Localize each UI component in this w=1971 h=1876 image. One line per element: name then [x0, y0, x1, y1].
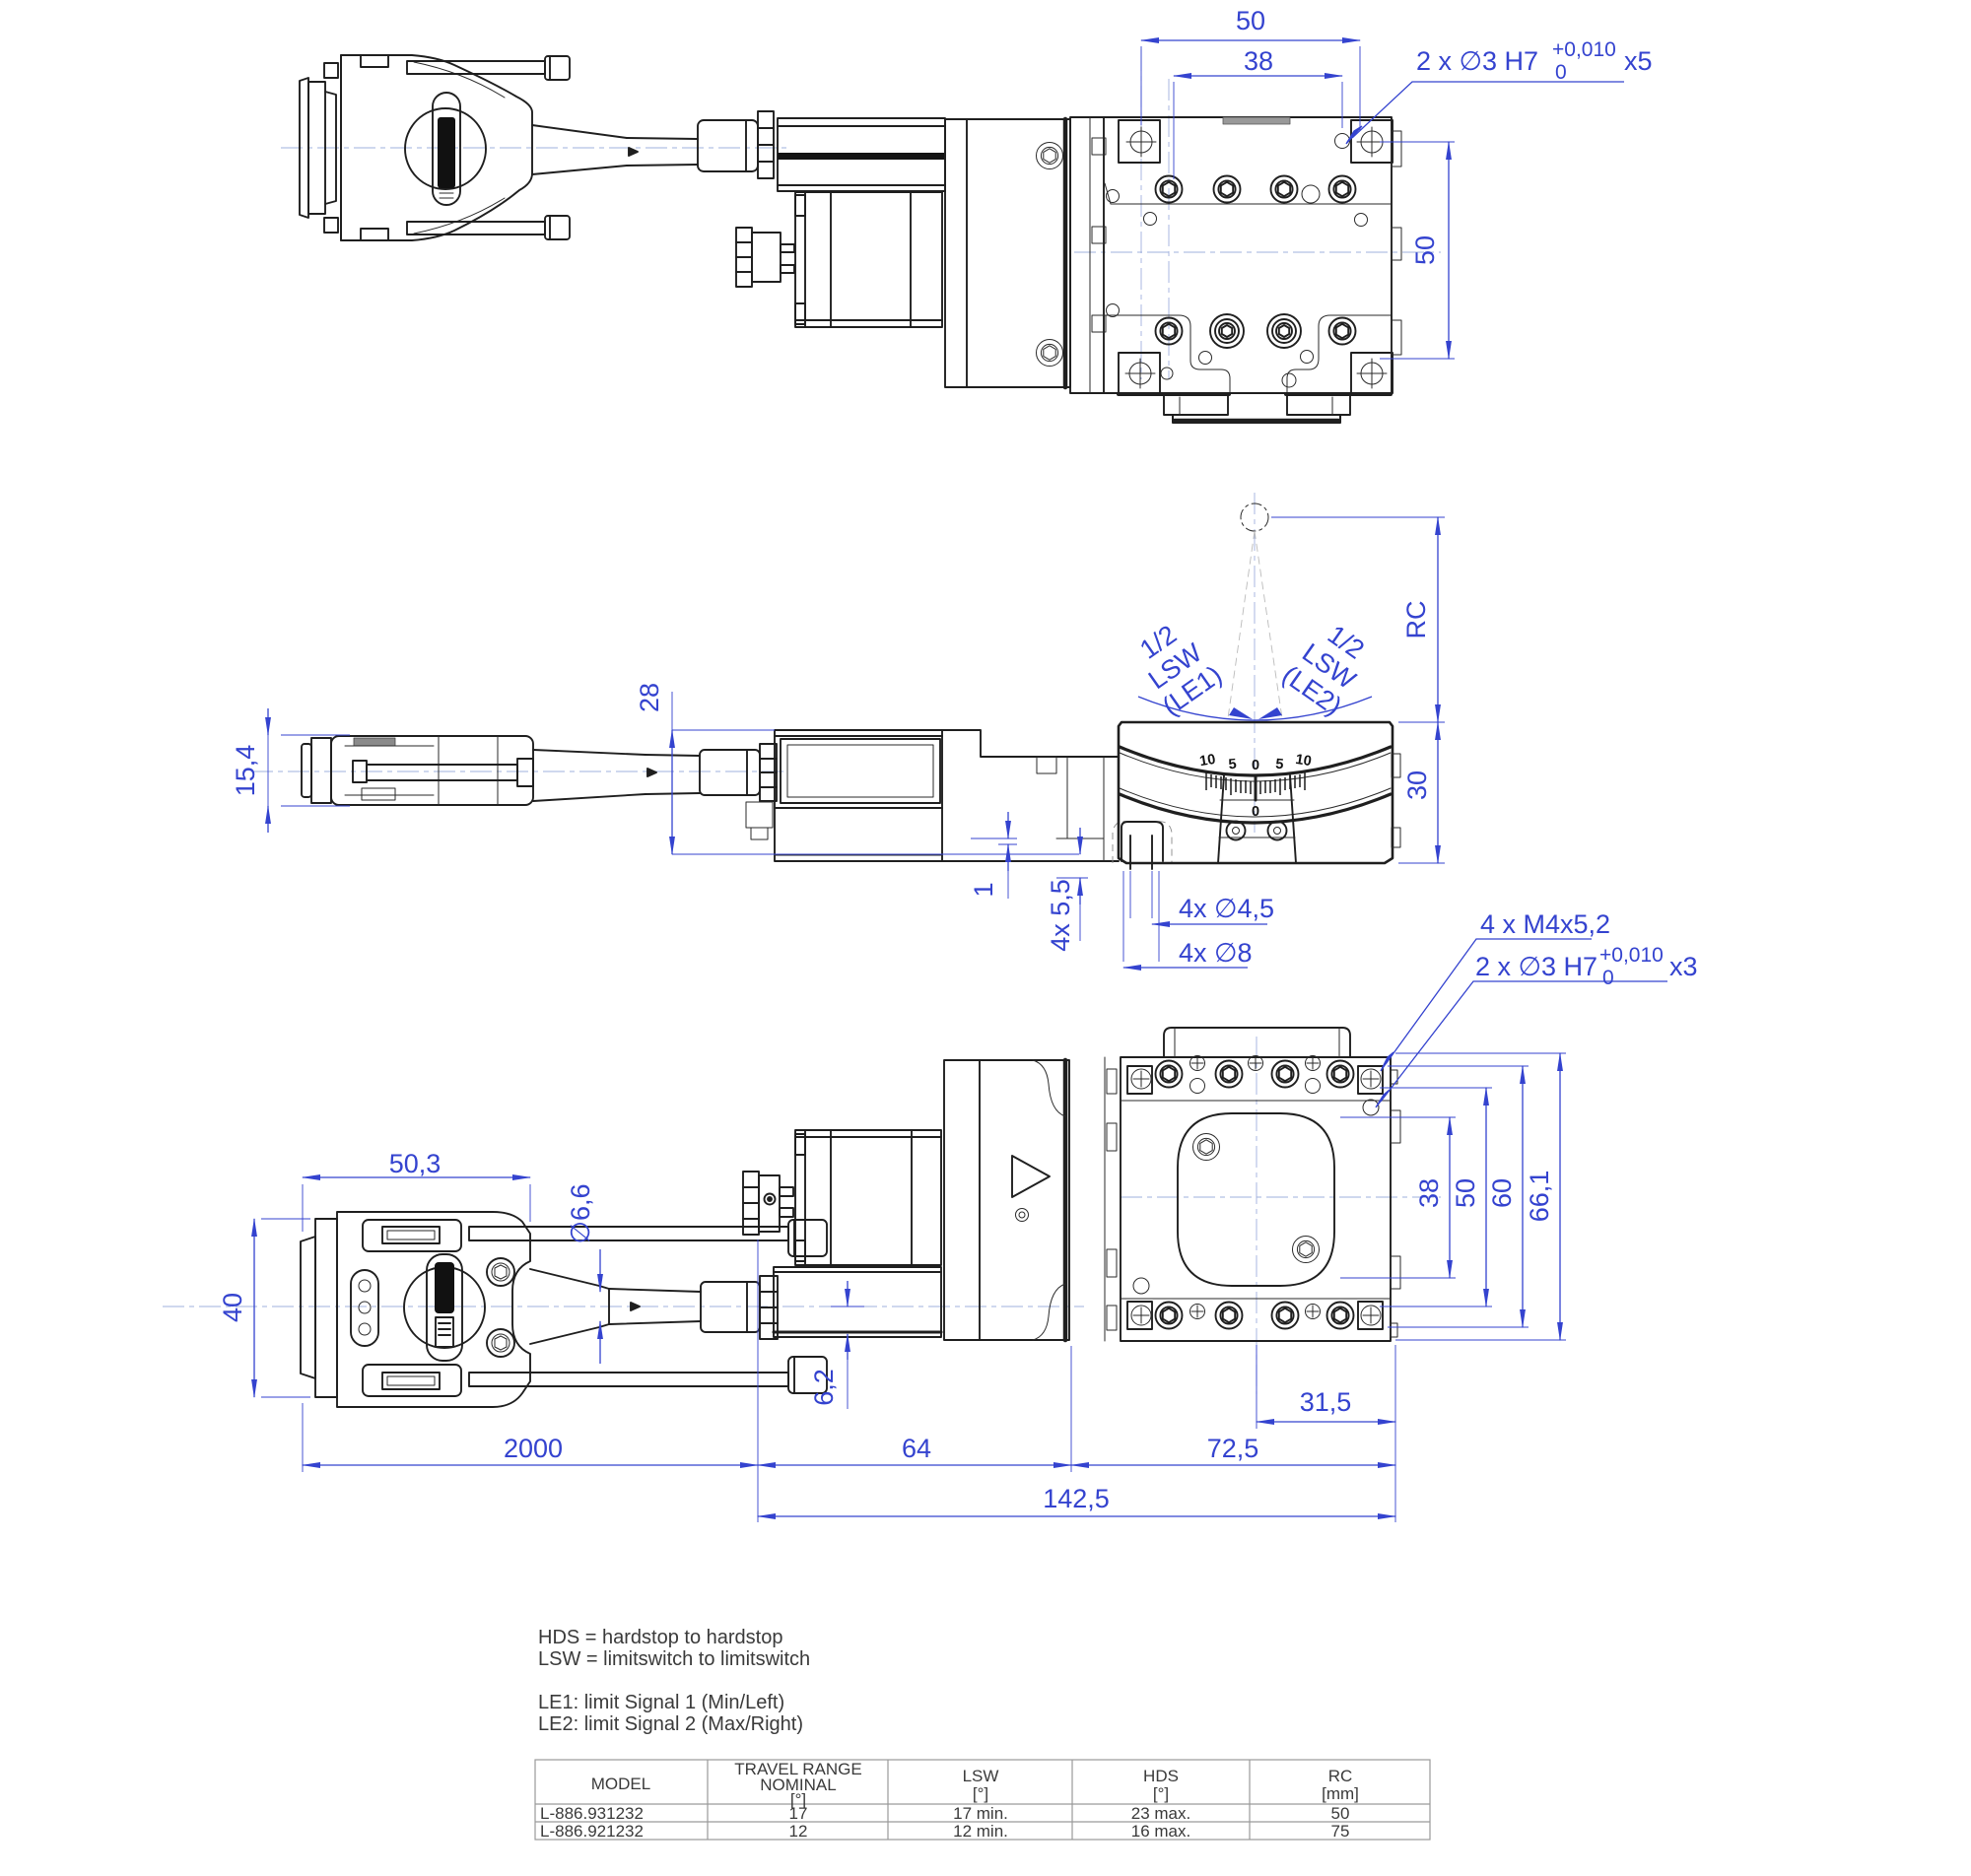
svg-text:12 min.: 12 min.	[953, 1822, 1008, 1841]
svg-text:4x ∅8: 4x ∅8	[1179, 938, 1253, 968]
svg-text:15,4: 15,4	[231, 745, 260, 797]
svg-text:0: 0	[1252, 758, 1259, 773]
svg-text:72,5: 72,5	[1207, 1434, 1259, 1463]
svg-text:5: 5	[1275, 757, 1284, 773]
svg-text:23 max.: 23 max.	[1131, 1804, 1190, 1823]
svg-text:12: 12	[789, 1822, 808, 1841]
svg-text:+0,010: +0,010	[1552, 38, 1616, 61]
svg-text:0: 0	[1602, 967, 1614, 989]
svg-text:31,5: 31,5	[1300, 1387, 1352, 1417]
svg-text:4 x M4x5,2: 4 x M4x5,2	[1480, 909, 1610, 939]
svg-text:2 x ∅3 H7: 2 x ∅3 H7	[1475, 952, 1597, 981]
svg-text:50: 50	[1451, 1178, 1480, 1208]
svg-text:LE2: limit Signal 2 (Max/Right: LE2: limit Signal 2 (Max/Right)	[538, 1713, 803, 1735]
svg-text:2 x ∅3 H7: 2 x ∅3 H7	[1416, 46, 1538, 76]
svg-text:50: 50	[1410, 235, 1440, 265]
svg-text:50: 50	[1236, 6, 1265, 35]
svg-text:L-886.921232: L-886.921232	[540, 1822, 644, 1841]
svg-text:0: 0	[1555, 61, 1567, 84]
svg-text:LE1: limit Signal 1 (Min/Left): LE1: limit Signal 1 (Min/Left)	[538, 1692, 784, 1713]
svg-text:17 min.: 17 min.	[953, 1804, 1008, 1823]
svg-text:142,5: 142,5	[1043, 1484, 1110, 1513]
svg-text:4x 5,5: 4x 5,5	[1046, 879, 1075, 952]
svg-text:17: 17	[789, 1804, 808, 1823]
svg-text:60: 60	[1487, 1178, 1517, 1208]
svg-text:6,2: 6,2	[809, 1369, 839, 1406]
svg-text:HDS: HDS	[1143, 1767, 1179, 1785]
svg-text:∅6,6: ∅6,6	[566, 1183, 595, 1243]
svg-text:RC: RC	[1401, 601, 1431, 639]
svg-text:RC: RC	[1328, 1767, 1353, 1785]
svg-text:2000: 2000	[504, 1434, 563, 1463]
svg-text:LSW = limitswitch to limitswit: LSW = limitswitch to limitswitch	[538, 1648, 810, 1670]
svg-text:28: 28	[635, 683, 664, 712]
svg-text:4x ∅4,5: 4x ∅4,5	[1179, 894, 1274, 923]
svg-text:0: 0	[1252, 804, 1259, 820]
svg-text:[°]: [°]	[1153, 1784, 1169, 1803]
svg-text:66,1: 66,1	[1525, 1171, 1554, 1223]
svg-text:38: 38	[1244, 46, 1273, 76]
svg-text:5: 5	[1228, 757, 1237, 773]
svg-text:16 max.: 16 max.	[1131, 1822, 1190, 1841]
svg-text:x3: x3	[1669, 952, 1698, 981]
svg-text:38: 38	[1414, 1178, 1444, 1208]
svg-text:40: 40	[218, 1293, 247, 1322]
svg-text:HDS = hardstop to hardstop: HDS = hardstop to hardstop	[538, 1627, 782, 1648]
svg-text:10: 10	[1198, 752, 1216, 770]
svg-text:50,3: 50,3	[389, 1149, 442, 1178]
svg-text:64: 64	[902, 1434, 931, 1463]
svg-text:[mm]: [mm]	[1322, 1784, 1359, 1803]
svg-text:50: 50	[1331, 1804, 1350, 1823]
svg-text:10: 10	[1294, 752, 1312, 770]
svg-text:L-886.931232: L-886.931232	[540, 1804, 644, 1823]
svg-text:[°]: [°]	[973, 1784, 988, 1803]
svg-text:LSW: LSW	[963, 1767, 999, 1785]
svg-text:75: 75	[1331, 1822, 1350, 1841]
svg-text:x5: x5	[1624, 46, 1653, 76]
svg-text:MODEL: MODEL	[591, 1775, 650, 1793]
svg-text:30: 30	[1402, 770, 1432, 800]
svg-text:+0,010: +0,010	[1599, 944, 1664, 967]
svg-text:1: 1	[969, 882, 998, 897]
